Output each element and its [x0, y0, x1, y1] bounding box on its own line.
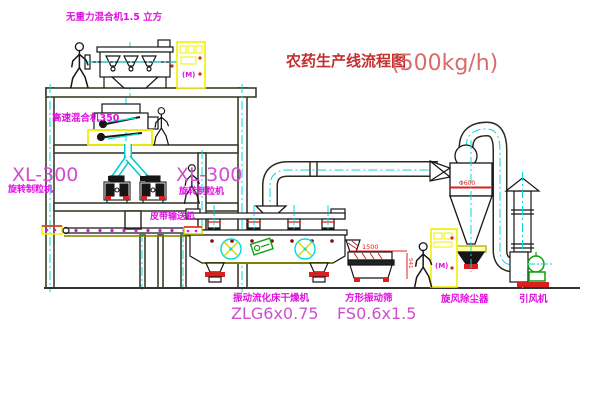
cabinet-2-motor-text: (M) — [435, 262, 448, 270]
indicator-dot — [450, 266, 453, 269]
label-screen-name: 方形振动筛 — [345, 292, 393, 304]
label-dryer-name: 振动流化床干燥机 — [233, 292, 310, 304]
mixer-top-stub — [158, 40, 170, 47]
label-granulator-right-model: XL-300 — [176, 164, 242, 186]
label-cyclone-name: 旋风除尘器 — [440, 293, 489, 305]
control-cabinet-2: (M) — [431, 229, 457, 287]
indicator-dot — [450, 236, 453, 239]
dryer-legs — [205, 263, 329, 282]
fan-base — [517, 282, 549, 287]
label-high-speed-mixer: 高速混合机350 — [52, 112, 120, 124]
induced-draft-fan — [510, 252, 552, 287]
process-flow-drawing: (M) — [0, 0, 600, 403]
belt-support-leg — [158, 235, 163, 288]
label-screen-model: FS0.6x1.5 — [337, 304, 416, 323]
dim-screen-width: 1500 — [362, 243, 379, 251]
label-dryer-model: ZLG6x0.75 — [231, 304, 319, 323]
person-figure — [415, 243, 432, 287]
indicator-dot — [198, 56, 201, 59]
control-cabinet-1: (M) — [177, 42, 205, 88]
label-granulator-right-name: 旋转制粒机 — [178, 185, 224, 197]
label-granulator-left-model: XL-300 — [12, 164, 78, 186]
diagram-title: 农药生产线流程图 — [285, 52, 406, 70]
label-gravity-mixer: 无重力混合机1.5 立方 — [65, 11, 163, 23]
floor-third — [54, 203, 238, 211]
belt-conveyor — [42, 226, 197, 236]
dim-screen-height: 541 — [407, 258, 413, 269]
diagram-title-capacity: (500kg/h) — [391, 51, 498, 76]
flow-diagram-canvas: (M) — [0, 0, 600, 403]
cabinet-1-motor-text: (M) — [182, 71, 195, 79]
fluid-bed-dryer — [184, 205, 347, 282]
floor-top — [46, 88, 256, 97]
gravity-free-mixer — [84, 40, 186, 88]
dim-cyclone-diameter: Φ600 — [459, 180, 475, 187]
label-belt-conveyor: 皮带输送机 — [149, 210, 195, 222]
dryer-exhaust-duct — [256, 161, 446, 217]
cyclone-inlet-reducer — [430, 161, 450, 181]
feed-chute-pillar — [125, 211, 141, 229]
floor-second — [54, 145, 238, 153]
high-speed-mixer — [88, 104, 158, 145]
red-marker-dot — [170, 64, 173, 67]
indicator-dot — [198, 72, 201, 75]
label-fan-name: 引风机 — [519, 293, 548, 305]
granulator-left — [104, 176, 130, 203]
dryer-inlet-hopper — [184, 227, 202, 234]
label-granulator-left-name: 旋转制粒机 — [7, 183, 53, 195]
